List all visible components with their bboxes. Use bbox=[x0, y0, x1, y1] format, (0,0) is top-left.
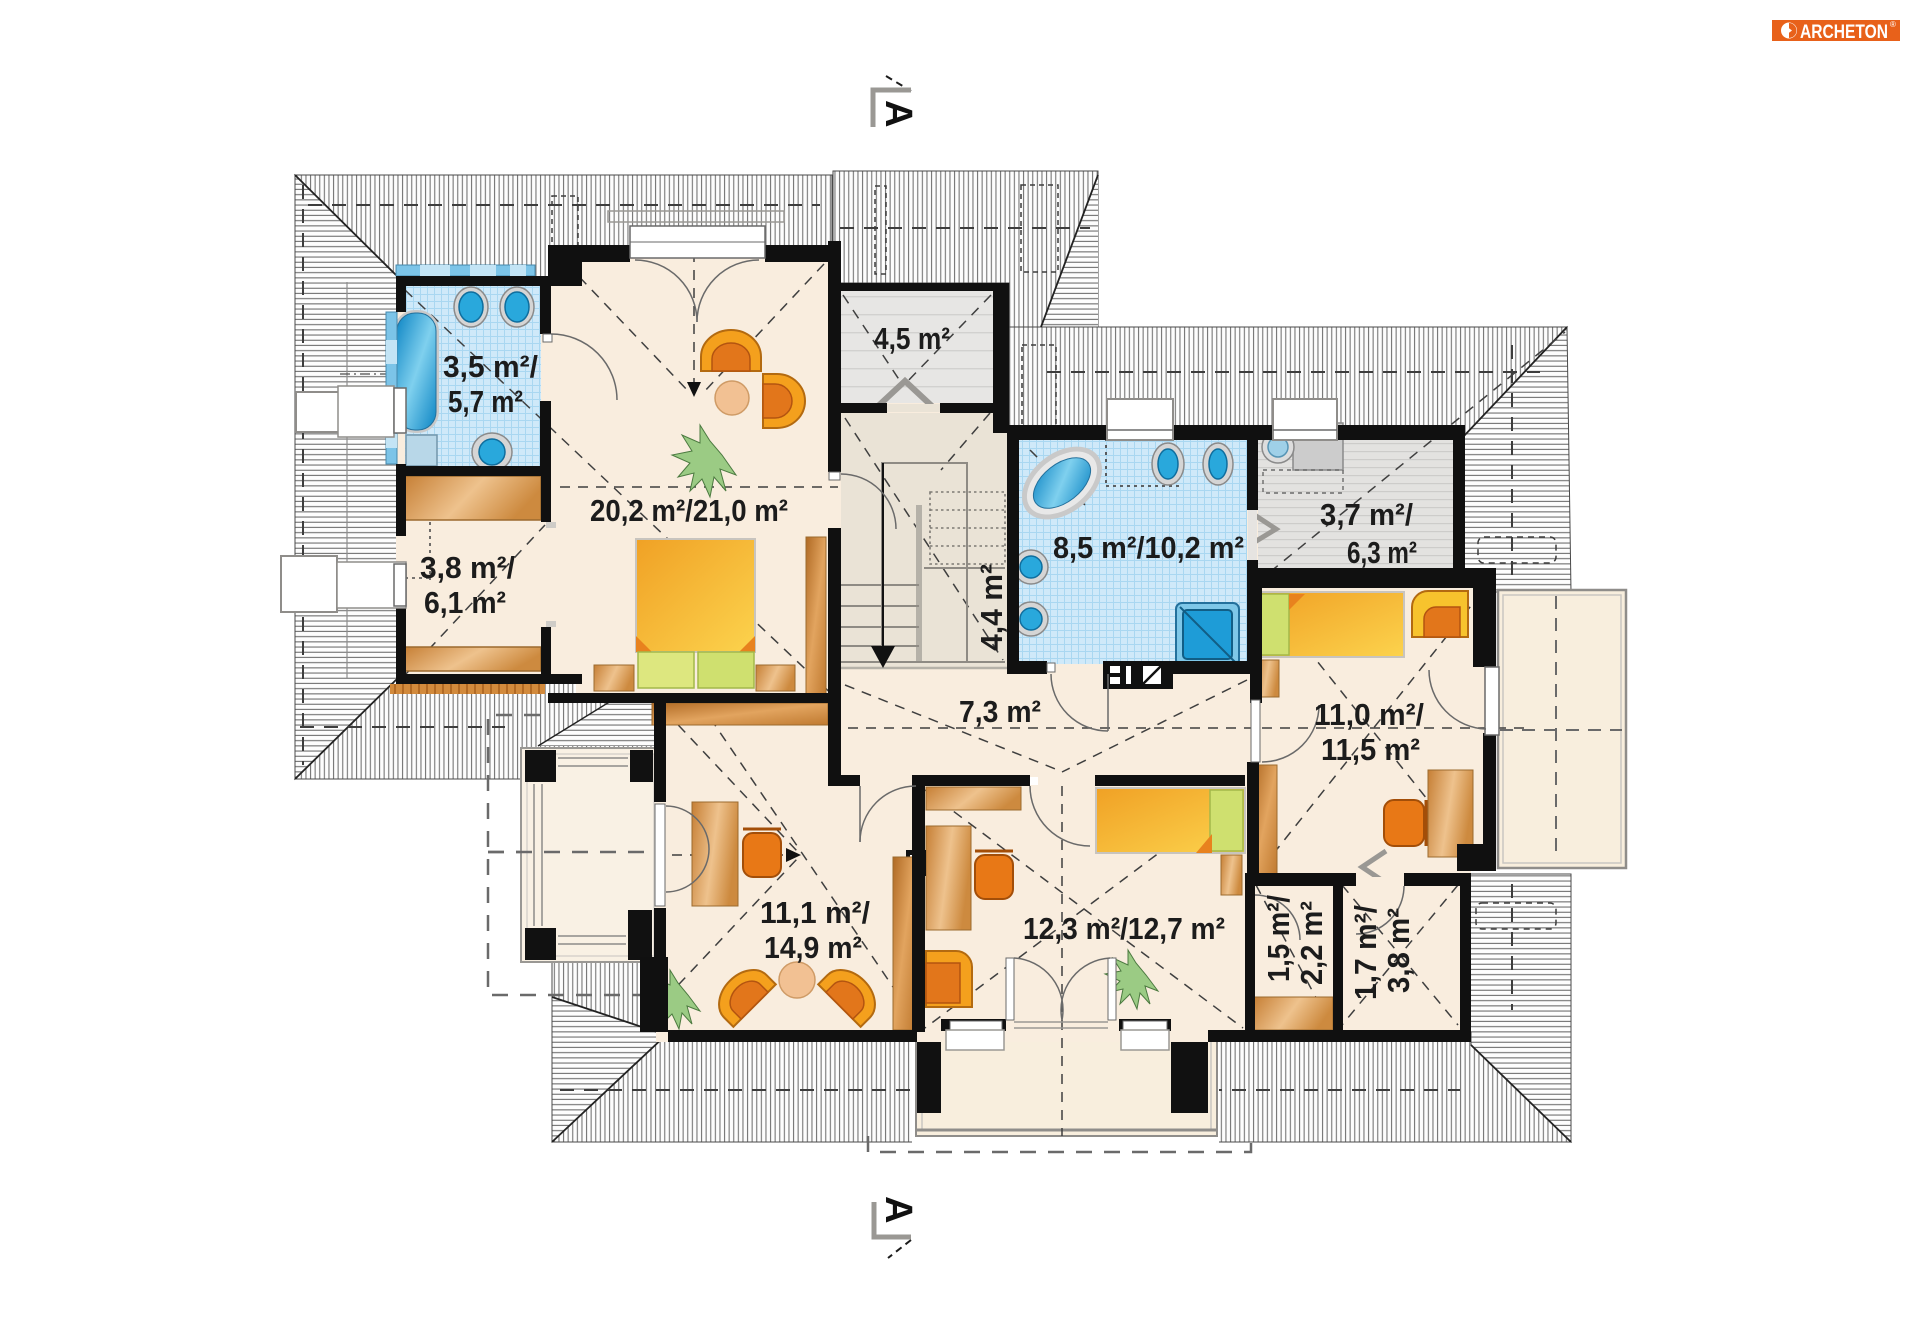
svg-text:11,5 m²: 11,5 m² bbox=[1321, 732, 1420, 767]
svg-text:4,4 m²: 4,4 m² bbox=[974, 564, 1009, 651]
svg-text:®: ® bbox=[1890, 20, 1896, 29]
svg-text:A: A bbox=[877, 100, 919, 127]
svg-text:2,2 m²: 2,2 m² bbox=[1294, 901, 1329, 985]
svg-text:3,8 m²: 3,8 m² bbox=[1381, 908, 1416, 993]
svg-text:14,9 m²: 14,9 m² bbox=[764, 930, 862, 965]
svg-text:12,3 m²/12,7 m²: 12,3 m²/12,7 m² bbox=[1023, 911, 1225, 946]
svg-text:1,5 m²/: 1,5 m²/ bbox=[1261, 895, 1296, 982]
svg-text:3,7 m²/: 3,7 m²/ bbox=[1320, 497, 1413, 532]
svg-text:1,7 m²/: 1,7 m²/ bbox=[1348, 905, 1383, 1000]
svg-text:11,0 m²/: 11,0 m²/ bbox=[1314, 697, 1424, 732]
svg-text:11,1 m²/: 11,1 m²/ bbox=[760, 895, 870, 930]
svg-text:6,1 m²: 6,1 m² bbox=[424, 585, 506, 620]
svg-text:ARCHETON: ARCHETON bbox=[1800, 22, 1888, 43]
svg-text:3,8 m²/: 3,8 m²/ bbox=[420, 550, 515, 585]
svg-text:20,2 m²/21,0 m²: 20,2 m²/21,0 m² bbox=[590, 493, 788, 528]
svg-text:3,5 m²/: 3,5 m²/ bbox=[443, 349, 538, 384]
svg-text:8,5 m²/10,2 m²: 8,5 m²/10,2 m² bbox=[1053, 530, 1244, 565]
svg-text:6,3 m²: 6,3 m² bbox=[1347, 535, 1417, 570]
svg-text:4,5 m²: 4,5 m² bbox=[874, 321, 950, 356]
svg-text:7,3 m²: 7,3 m² bbox=[959, 694, 1041, 729]
svg-text:5,7 m²: 5,7 m² bbox=[448, 384, 523, 419]
svg-text:A: A bbox=[877, 1196, 919, 1223]
